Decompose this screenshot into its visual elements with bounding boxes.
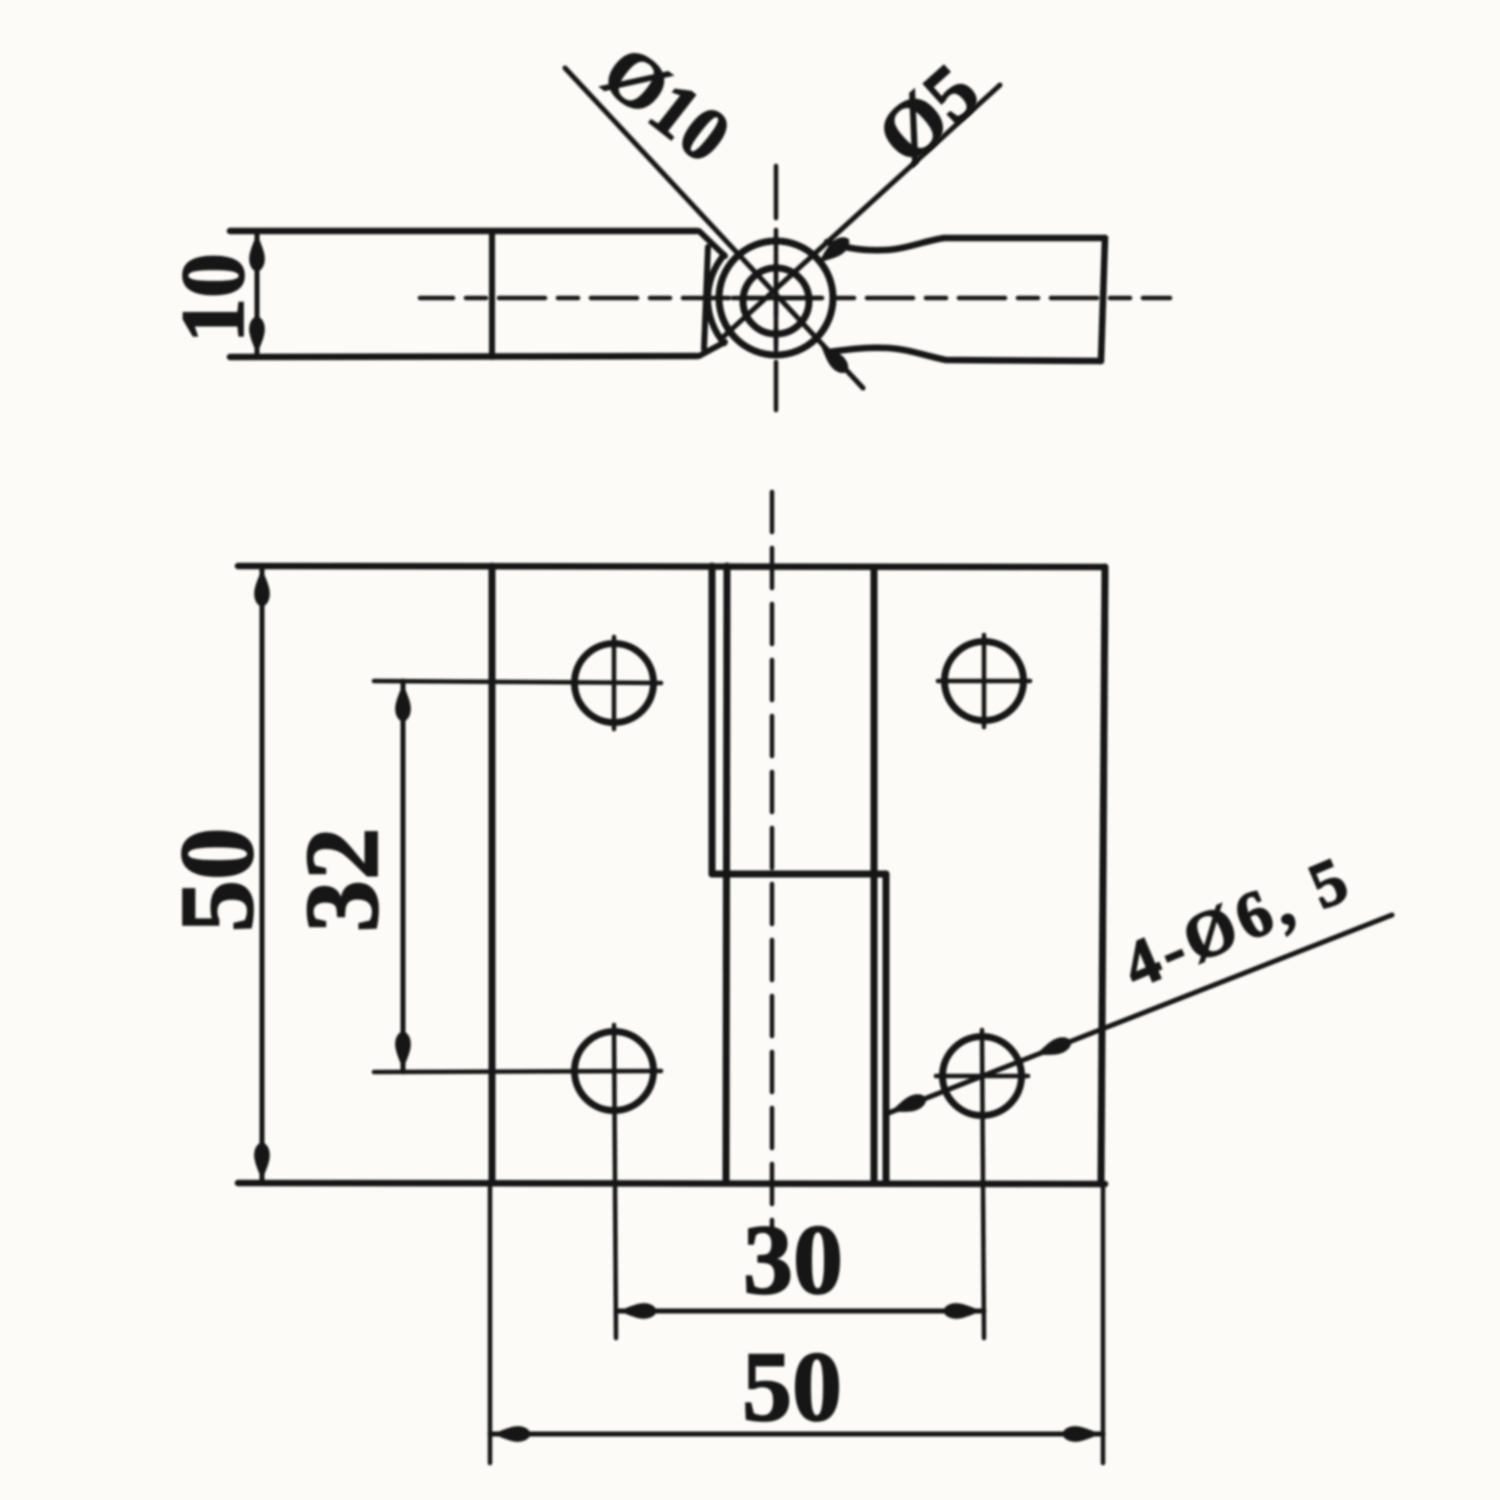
svg-text:10: 10: [164, 253, 263, 343]
svg-text:50: 50: [742, 1331, 842, 1442]
svg-text:50: 50: [158, 828, 275, 933]
svg-text:32: 32: [283, 828, 400, 933]
svg-text:30: 30: [743, 1204, 843, 1315]
